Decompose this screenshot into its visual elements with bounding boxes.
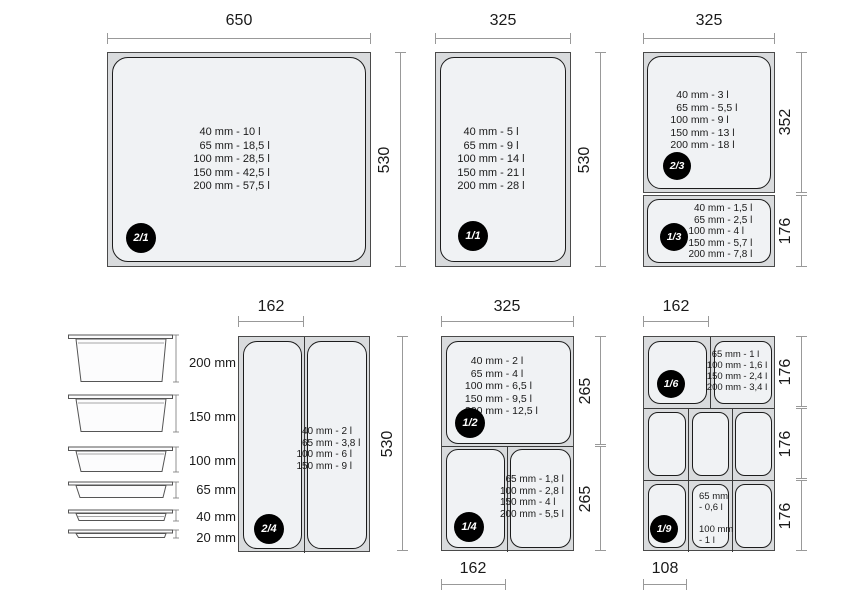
capacity-line: 150 mm - 13 l bbox=[666, 127, 761, 140]
pan-gn-1-6-right-inner: 65 mm - 1 l100 mm - 1,6 l150 mm - 2,4 l2… bbox=[714, 341, 772, 404]
tray-side-view-200mm bbox=[68, 334, 180, 389]
depth-label-65mm: 65 mm bbox=[182, 482, 236, 497]
capacity-line: 40 mm - 1,5 l bbox=[685, 203, 774, 215]
badge-gn-1-3: 1/3 bbox=[660, 223, 688, 251]
dim-label-530-gn11: 530 bbox=[576, 140, 594, 180]
dim-label-162-gn14: 162 bbox=[433, 560, 513, 578]
capacity-line: 65 mm - 2,5 l bbox=[685, 215, 774, 227]
pan-gn-1-6-1-9-group: 1/6 65 mm - 1 l100 mm - 1,6 l150 mm - 2,… bbox=[643, 336, 775, 551]
capacity-line: 150 mm - 9 l bbox=[293, 461, 382, 473]
depth-label-200mm: 200 mm bbox=[182, 355, 236, 370]
capacity-line: 100 mm - 6,5 l bbox=[461, 380, 556, 393]
capacity-line: 40 mm - 2 l bbox=[461, 355, 556, 368]
tray-side-view-40mm bbox=[68, 509, 180, 528]
pan-middle-cell-1 bbox=[648, 412, 686, 476]
dim-line-176-row1 bbox=[796, 336, 807, 407]
dim-line-162-gn14 bbox=[441, 579, 506, 590]
depth-label-100mm: 100 mm bbox=[182, 453, 236, 468]
badge-gn-1-4: 1/4 bbox=[454, 512, 484, 542]
capacity-line: 200 mm - 7,8 l bbox=[685, 249, 774, 261]
text-line bbox=[699, 513, 733, 524]
badge-gn-1-6: 1/6 bbox=[657, 370, 685, 398]
dim-line-530-gn11 bbox=[595, 52, 606, 267]
depth-label-150mm: 150 mm bbox=[182, 409, 236, 424]
row-divider-1 bbox=[644, 408, 774, 409]
depth-label-20mm: 20 mm bbox=[182, 530, 236, 545]
capacity-line: 100 mm - 2,8 l bbox=[496, 486, 585, 498]
depth-label-40mm: 40 mm bbox=[182, 509, 236, 524]
dim-label-176-row1: 176 bbox=[777, 352, 795, 392]
capacity-line: 200 mm - 28 l bbox=[453, 180, 553, 194]
text-line: 100 mm bbox=[699, 524, 733, 535]
dim-line-325-gn12 bbox=[441, 316, 574, 327]
dim-line-176-row3 bbox=[796, 480, 807, 551]
text-line: - 1 l bbox=[699, 535, 733, 546]
pan-middle-cell-3 bbox=[735, 412, 772, 476]
dim-line-325-gn23 bbox=[643, 33, 775, 44]
dim-label-176-row2: 176 bbox=[777, 424, 795, 464]
dim-label-162-gn16: 162 bbox=[636, 298, 716, 316]
capacity-line: 100 mm - 4 l bbox=[685, 226, 774, 238]
pan-middle-cell-2 bbox=[692, 412, 729, 476]
pan-gn-1-1: 40 mm - 5 l65 mm - 9 l100 mm - 14 l150 m… bbox=[435, 52, 571, 267]
capacity-line: 65 mm - 18,5 l bbox=[189, 140, 289, 154]
dim-line-352 bbox=[796, 52, 807, 193]
tray-side-view-100mm bbox=[68, 446, 180, 479]
capacity-list-gn-1-4: 65 mm - 1,8 l100 mm - 2,8 l150 mm - 4 l2… bbox=[501, 474, 580, 520]
tray-side-view-65mm bbox=[68, 481, 180, 505]
tray-side-view-20mm bbox=[68, 527, 180, 545]
dim-line-650 bbox=[107, 33, 371, 44]
capacity-line: 40 mm - 3 l bbox=[666, 89, 761, 102]
capacity-line: 200 mm - 3,4 l bbox=[707, 382, 779, 393]
dim-line-176-row2 bbox=[796, 408, 807, 479]
capacity-line: 65 mm - 5,5 l bbox=[666, 102, 761, 115]
badge-gn-1-2: 1/2 bbox=[455, 408, 485, 438]
dim-label-530-gn24: 530 bbox=[379, 424, 397, 464]
pan-gn-2-4: 40 mm - 2 l65 mm - 3,8 l100 mm - 6 l150 … bbox=[238, 336, 370, 552]
pan-gn-1-3: 40 mm - 1,5 l65 mm - 2,5 l100 mm - 4 l15… bbox=[643, 195, 775, 267]
capacity-lines-gn-1-9: 65 mm- 0,6 l100 mm- 1 l bbox=[699, 491, 733, 546]
capacity-line: 150 mm - 4 l bbox=[496, 497, 585, 509]
dim-label-108: 108 bbox=[625, 560, 705, 578]
dim-label-650: 650 bbox=[199, 12, 279, 30]
dim-label-530-gn21: 530 bbox=[376, 140, 394, 180]
capacity-line: 100 mm - 1,6 l bbox=[707, 360, 779, 371]
capacity-list-gn-1-3: 40 mm - 1,5 l65 mm - 2,5 l100 mm - 4 l15… bbox=[686, 203, 772, 261]
dim-line-530-gn24 bbox=[397, 336, 408, 551]
text-line: - 0,6 l bbox=[699, 502, 733, 513]
dim-label-325-gn11: 325 bbox=[463, 12, 543, 30]
pan-gn-1-6-inner: 1/6 bbox=[648, 341, 707, 404]
gastronorm-sizes-diagram: 650 40 mm - 10 l65 mm - 18,5 l100 mm - 2… bbox=[0, 0, 864, 602]
capacity-line: 65 mm - 3,8 l bbox=[293, 438, 382, 450]
capacity-list-gn-2-4: 40 mm - 2 l65 mm - 3,8 l100 mm - 6 l150 … bbox=[300, 426, 374, 472]
capacity-line: 200 mm - 18 l bbox=[666, 139, 761, 152]
capacity-line: 150 mm - 42,5 l bbox=[189, 167, 289, 181]
capacity-line: 100 mm - 14 l bbox=[453, 153, 553, 167]
dim-line-162-gn16 bbox=[643, 316, 709, 327]
capacity-line: 150 mm - 2,4 l bbox=[707, 371, 779, 382]
dim-label-265-bottom: 265 bbox=[577, 479, 595, 519]
pan-gn-2-3: 40 mm - 3 l65 mm - 5,5 l100 mm - 9 l150 … bbox=[643, 52, 775, 193]
dim-line-265-top bbox=[595, 336, 606, 445]
capacity-list-gn-1-1: 40 mm - 5 l65 mm - 9 l100 mm - 14 l150 m… bbox=[436, 126, 570, 194]
capacity-line: 150 mm - 21 l bbox=[453, 167, 553, 181]
dim-label-176-gn13: 176 bbox=[777, 211, 795, 251]
pan-gn-1-4-right-inner: 65 mm - 1,8 l100 mm - 2,8 l150 mm - 4 l2… bbox=[510, 449, 571, 548]
pan-gn-2-1: 40 mm - 10 l65 mm - 18,5 l100 mm - 28,5 … bbox=[107, 52, 371, 267]
capacity-line: 100 mm - 9 l bbox=[666, 114, 761, 127]
capacity-line: 200 mm - 57,5 l bbox=[189, 180, 289, 194]
badge-gn-1-9: 1/9 bbox=[650, 515, 678, 543]
badge-gn-1-1: 1/1 bbox=[458, 221, 488, 251]
pan-gn-1-2-1-4-group: 40 mm - 2 l65 mm - 4 l100 mm - 6,5 l150 … bbox=[441, 336, 574, 551]
capacity-line: 100 mm - 6 l bbox=[293, 449, 382, 461]
dim-label-176-row3: 176 bbox=[777, 496, 795, 536]
pan-gn-1-9-right-inner bbox=[735, 484, 772, 548]
badge-gn-2-3: 2/3 bbox=[663, 152, 691, 180]
capacity-line: 40 mm - 10 l bbox=[189, 126, 289, 140]
dim-label-325-gn23: 325 bbox=[669, 12, 749, 30]
capacity-line: 40 mm - 5 l bbox=[453, 126, 553, 140]
dim-label-352: 352 bbox=[777, 102, 795, 142]
dim-line-162-gn24 bbox=[238, 316, 304, 327]
dim-line-108 bbox=[643, 579, 687, 590]
dim-label-325-gn12: 325 bbox=[467, 298, 547, 316]
capacity-list-gn-1-6: 65 mm - 1 l100 mm - 1,6 l150 mm - 2,4 l2… bbox=[707, 349, 779, 393]
capacity-line: 65 mm - 9 l bbox=[453, 140, 553, 154]
capacity-line: 150 mm - 9,5 l bbox=[461, 393, 556, 406]
capacity-line: 65 mm - 1,8 l bbox=[496, 474, 585, 486]
capacity-list-gn-2-1: 40 mm - 10 l65 mm - 18,5 l100 mm - 28,5 … bbox=[108, 126, 370, 194]
tray-side-view-150mm bbox=[68, 394, 180, 439]
row-divider-2 bbox=[644, 480, 774, 481]
capacity-list-gn-2-3: 40 mm - 3 l65 mm - 5,5 l100 mm - 9 l150 … bbox=[654, 89, 774, 152]
capacity-line: 100 mm - 28,5 l bbox=[189, 153, 289, 167]
dim-line-176-gn13 bbox=[796, 195, 807, 267]
capacity-line: 150 mm - 5,7 l bbox=[685, 238, 774, 250]
dim-line-265-bottom bbox=[595, 446, 606, 551]
capacity-line: 40 mm - 2 l bbox=[293, 426, 382, 438]
dim-line-325-gn11 bbox=[435, 33, 571, 44]
capacity-line: 65 mm - 4 l bbox=[461, 368, 556, 381]
pan-gn-1-9-middle-inner: 65 mm- 0,6 l100 mm- 1 l bbox=[692, 484, 729, 548]
pan-gn-1-9-inner: 1/9 bbox=[648, 484, 686, 548]
capacity-line: 200 mm - 5,5 l bbox=[496, 509, 585, 521]
dim-label-265-top: 265 bbox=[577, 371, 595, 411]
badge-gn-2-4: 2/4 bbox=[254, 514, 284, 544]
dim-line-530-gn21 bbox=[395, 52, 406, 267]
capacity-line: 65 mm - 1 l bbox=[707, 349, 779, 360]
pan-gn-2-4-right-inner: 40 mm - 2 l65 mm - 3,8 l100 mm - 6 l150 … bbox=[307, 341, 367, 549]
dim-label-162-gn24: 162 bbox=[231, 298, 311, 316]
pan-gn-1-2-inner: 40 mm - 2 l65 mm - 4 l100 mm - 6,5 l150 … bbox=[446, 341, 571, 444]
badge-gn-2-1: 2/1 bbox=[126, 223, 156, 253]
text-line: 65 mm bbox=[699, 491, 733, 502]
